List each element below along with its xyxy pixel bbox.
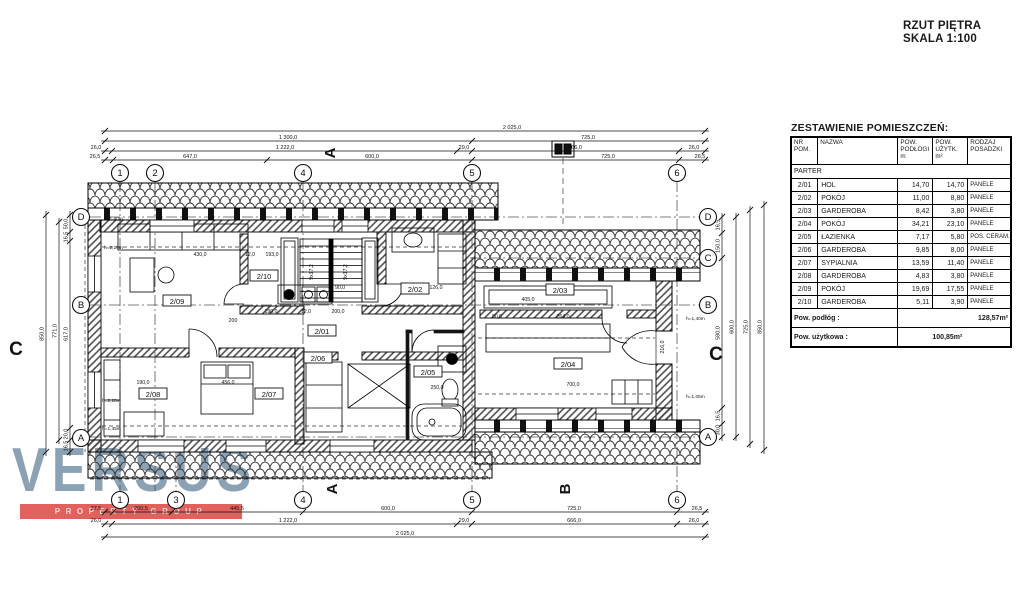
cell: POS. CERAM.: [968, 231, 1011, 244]
dimension-label: 2 025,0: [396, 531, 414, 537]
dimension-label: 16,5: [64, 232, 70, 243]
cell: PANELE: [968, 244, 1011, 257]
dimension-label: 16,5: [716, 411, 722, 422]
grid-bubble-label: 5: [469, 495, 474, 506]
cell: PANELE: [968, 192, 1011, 205]
room-label: 2/09: [170, 297, 185, 306]
cell: GARDEROBA: [818, 296, 898, 309]
cell: 23,10: [933, 218, 968, 231]
room-label: 2/08: [146, 390, 161, 399]
table-row: 2/07SYPIALNIA13,5911,40PANELE: [791, 257, 1011, 270]
grid-bubble-label: 6: [674, 168, 679, 179]
cell: 13,59: [898, 257, 933, 270]
grid-bubble-label: A: [705, 432, 712, 443]
cell: POKÓJ: [818, 283, 898, 296]
cell: PANELE: [968, 179, 1011, 192]
dimension-label: 26,0: [689, 145, 700, 151]
dimension-label: 850,0: [758, 320, 764, 334]
dimension-label: 405,0: [522, 297, 535, 303]
table-row: 2/01HOL14,7014,70PANELE: [791, 179, 1011, 192]
dimension-label: 27,5: [91, 506, 102, 512]
grid-bubble-label: 4: [300, 495, 305, 506]
dimension-label: 12,0: [301, 309, 311, 315]
dimension-label: 26,0: [689, 518, 700, 524]
room-schedule-heading: ZESTAWIENIE POMIESZCZEŃ:: [791, 122, 1012, 134]
dimension-label: 26,0: [91, 518, 102, 524]
cell: PANELE: [968, 257, 1011, 270]
section-marker: C: [709, 344, 723, 365]
dimension-label: 617,0: [64, 327, 70, 341]
dimension-label: 1 300,0: [279, 135, 297, 141]
table-row: 2/10GARDEROBA5,113,90PANELE: [791, 296, 1011, 309]
cell: 2/06: [791, 244, 818, 257]
room-label: 2/01: [315, 327, 330, 336]
dimension-label: 647,0: [183, 154, 197, 160]
height-note: h=2,20m: [102, 398, 121, 404]
room-label: 2/07: [262, 390, 277, 399]
section-marker: A: [322, 147, 339, 158]
dimension-label: 190,0: [265, 309, 278, 315]
section-label: PARTER: [791, 165, 1011, 179]
cell: PANELE: [968, 205, 1011, 218]
total-usable-label: Pow. użytkowa :: [791, 328, 898, 348]
cell: 5,11: [898, 296, 933, 309]
dimension-label: 850,0: [40, 327, 46, 341]
room-label: 2/06: [311, 354, 326, 363]
dimension-label: 150,0: [716, 239, 722, 253]
cell: 8,00: [933, 244, 968, 257]
double-door: [622, 331, 656, 347]
table-row: 2/04POKÓJ34,2123,10PANELE: [791, 218, 1011, 231]
cell: SYPIALNIA: [818, 257, 898, 270]
column-header: NAZWA: [818, 137, 898, 165]
dimension-label: 29,0: [459, 145, 470, 151]
dimension-label: 30,0: [716, 425, 722, 436]
dimension-label: 9x17,2: [309, 264, 315, 280]
dimension-label: 190,0: [137, 380, 150, 386]
table-row: 2/08GARDEROBA4,833,80PANELE: [791, 270, 1011, 283]
dimension-label: 430,0: [194, 252, 207, 258]
grid-bubble-label: 3: [173, 495, 178, 506]
total-floor-label: Pow. podłóg :: [791, 309, 898, 328]
dimension-label: 50,0: [64, 219, 70, 230]
cell: POKÓJ: [818, 192, 898, 205]
cell: GARDEROBA: [818, 205, 898, 218]
dimension-label: 20,0: [64, 429, 70, 440]
grid-bubble-label: A: [78, 433, 85, 444]
drawing-title: RZUT PIĘTRA: [903, 20, 981, 33]
column-header: NR POM.: [791, 137, 818, 165]
dimension-label: 725,0: [581, 135, 595, 141]
cell: 11,40: [933, 257, 968, 270]
dimension-label: 666,0: [568, 145, 582, 151]
cell: 14,70: [898, 179, 933, 192]
staircase: [281, 238, 378, 302]
dimension-label: 1 222,0: [279, 518, 297, 524]
room-label: 2/03: [553, 286, 568, 295]
dimension-label: 200: [229, 318, 238, 324]
room-schedule: ZESTAWIENIE POMIESZCZEŃ: NR POM.NAZWAPOW…: [790, 122, 1012, 348]
cell: 7,17: [898, 231, 933, 244]
dimension-label: 725,0: [567, 506, 581, 512]
cell: 3,80: [933, 205, 968, 218]
dimension-label: 16,5: [716, 220, 722, 231]
cell: 8,42: [898, 205, 933, 218]
cell: 2/09: [791, 283, 818, 296]
grid-bubble-label: 1: [117, 168, 122, 179]
cell: PANELE: [968, 270, 1011, 283]
column-header: RODZAJ POSADZKI: [968, 137, 1011, 165]
cell: PANELE: [968, 296, 1011, 309]
dimension-label: 126,0: [430, 285, 443, 291]
dimension-label: 26,0: [91, 145, 102, 151]
dimension-label: 771,0: [53, 324, 59, 338]
dimension-label: 666,0: [567, 518, 581, 524]
dimension-label: 200,0: [332, 309, 345, 315]
table-row: 2/09POKÓJ19,6917,55PANELE: [791, 283, 1011, 296]
room-label: 2/05: [421, 368, 436, 377]
height-note: h=1,40m: [104, 216, 123, 222]
grid-bubble-label: 1: [117, 495, 122, 506]
cell: 11,00: [898, 192, 933, 205]
height-note: h=2,20m: [104, 245, 123, 251]
cell: GARDEROBA: [818, 244, 898, 257]
dimension-label: 26,5: [695, 154, 706, 160]
dimension-label: 29,0: [459, 518, 470, 524]
dimension-label: 250,0: [431, 385, 444, 391]
column-header: POW. UŻYTK. m²: [933, 137, 968, 165]
table-row: 2/03GARDEROBA8,423,80PANELE: [791, 205, 1011, 218]
height-note: h=1,40m: [686, 316, 705, 322]
cell: GARDEROBA: [818, 270, 898, 283]
cell: POKÓJ: [818, 218, 898, 231]
cell: 3,80: [933, 270, 968, 283]
grid-bubble-label: B: [705, 300, 711, 311]
cell: 2/07: [791, 257, 818, 270]
total-usable-value: 100,85m²: [898, 328, 1011, 348]
dimension-label: 12,0: [245, 252, 255, 258]
grid-bubble-label: B: [78, 300, 84, 311]
dimension-label: 456,0: [222, 380, 235, 386]
grid-bubble-label: 5: [469, 168, 474, 179]
cell: PANELE: [968, 283, 1011, 296]
bed: [201, 362, 253, 414]
grid-bubble-label: D: [78, 212, 85, 223]
cell: 4,83: [898, 270, 933, 283]
toilet: [442, 379, 458, 401]
cell: 2/08: [791, 270, 818, 283]
dimension-label: 9x17,2: [343, 264, 349, 280]
dimension-label: 26,5: [692, 506, 703, 512]
grid-bubble-label: D: [705, 212, 712, 223]
dimension-label: 600,0: [365, 154, 379, 160]
room-table: NR POM.NAZWAPOW. PODŁOGI mPOW. UŻYTK. m²…: [790, 136, 1012, 348]
dimension-label: 1 222,0: [276, 145, 294, 151]
table-row: 2/02POKÓJ11,008,80PANELE: [791, 192, 1011, 205]
totals-row: Pow. podłóg : 128,57m²: [791, 309, 1011, 328]
dimension-label: 26,5: [90, 154, 101, 160]
cell: PANELE: [968, 218, 1011, 231]
cell: 2/10: [791, 296, 818, 309]
room-label: 2/04: [561, 360, 576, 369]
section-marker: C: [9, 339, 23, 360]
section-marker: B: [557, 483, 574, 494]
dimension-label: 264,0: [557, 314, 570, 320]
dimension-label: 90,0: [335, 285, 345, 291]
cell: 34,21: [898, 218, 933, 231]
cell: HOL: [818, 179, 898, 192]
room-label: 2/02: [408, 285, 423, 294]
cell: 2/01: [791, 179, 818, 192]
grid-bubble-label: 2: [152, 168, 157, 179]
column-header: POW. PODŁOGI m: [898, 137, 933, 165]
dimension-label: 600,0: [381, 506, 395, 512]
cell: 2/03: [791, 205, 818, 218]
room-label: 2/10: [257, 272, 272, 281]
dimension-label: 700,0: [567, 382, 580, 388]
drawing-sheet: VERSUS PROPERTY GROUP: [0, 0, 1024, 610]
dimension-label: 216,0: [660, 340, 666, 353]
height-note: h=1,45m: [102, 426, 121, 432]
dimension-label: 725,0: [744, 320, 750, 334]
drawing-scale: SKALA 1:100: [903, 33, 981, 46]
section-row: PARTER: [791, 165, 1011, 179]
grid-bubble-label: 6: [674, 495, 679, 506]
cell: 19,69: [898, 283, 933, 296]
dimension-label: 445,5: [230, 506, 244, 512]
cell: 3,90: [933, 296, 968, 309]
cell: 14,70: [933, 179, 968, 192]
section-marker: A: [324, 483, 341, 494]
cell: 8,80: [933, 192, 968, 205]
totals-row: Pow. użytkowa : 100,85m²: [791, 328, 1011, 348]
cell: 5,80: [933, 231, 968, 244]
dimension-label: 580,0: [716, 326, 722, 340]
bathtub: [412, 404, 466, 440]
grid-bubble-label: 4: [300, 168, 305, 179]
dimension-label: 600,0: [730, 320, 736, 334]
cell: ŁAZIENKA: [818, 231, 898, 244]
cell: 2/04: [791, 218, 818, 231]
cell: 9,85: [898, 244, 933, 257]
dimension-label: 200,5: [134, 506, 148, 512]
total-floor-value: 128,57m²: [898, 309, 1011, 328]
title-block: RZUT PIĘTRA SKALA 1:100: [903, 20, 981, 46]
dimension-label: 16,5: [64, 441, 70, 452]
cell: 2/02: [791, 192, 818, 205]
table-row: 2/06GARDEROBA9,858,00PANELE: [791, 244, 1011, 257]
grid-bubble-label: C: [705, 253, 712, 264]
dimension-label: 725,0: [601, 154, 615, 160]
dimension-label: 193,0: [266, 252, 279, 258]
dimension-label: 2 025,0: [503, 125, 521, 131]
cell: 2/05: [791, 231, 818, 244]
dimension-label: 90,0: [492, 314, 502, 320]
table-row: 2/05ŁAZIENKA7,175,80POS. CERAM.: [791, 231, 1011, 244]
header-row: NR POM.NAZWAPOW. PODŁOGI mPOW. UŻYTK. m²…: [791, 137, 1011, 165]
height-note: h=1,05m: [686, 394, 705, 400]
cell: 17,55: [933, 283, 968, 296]
